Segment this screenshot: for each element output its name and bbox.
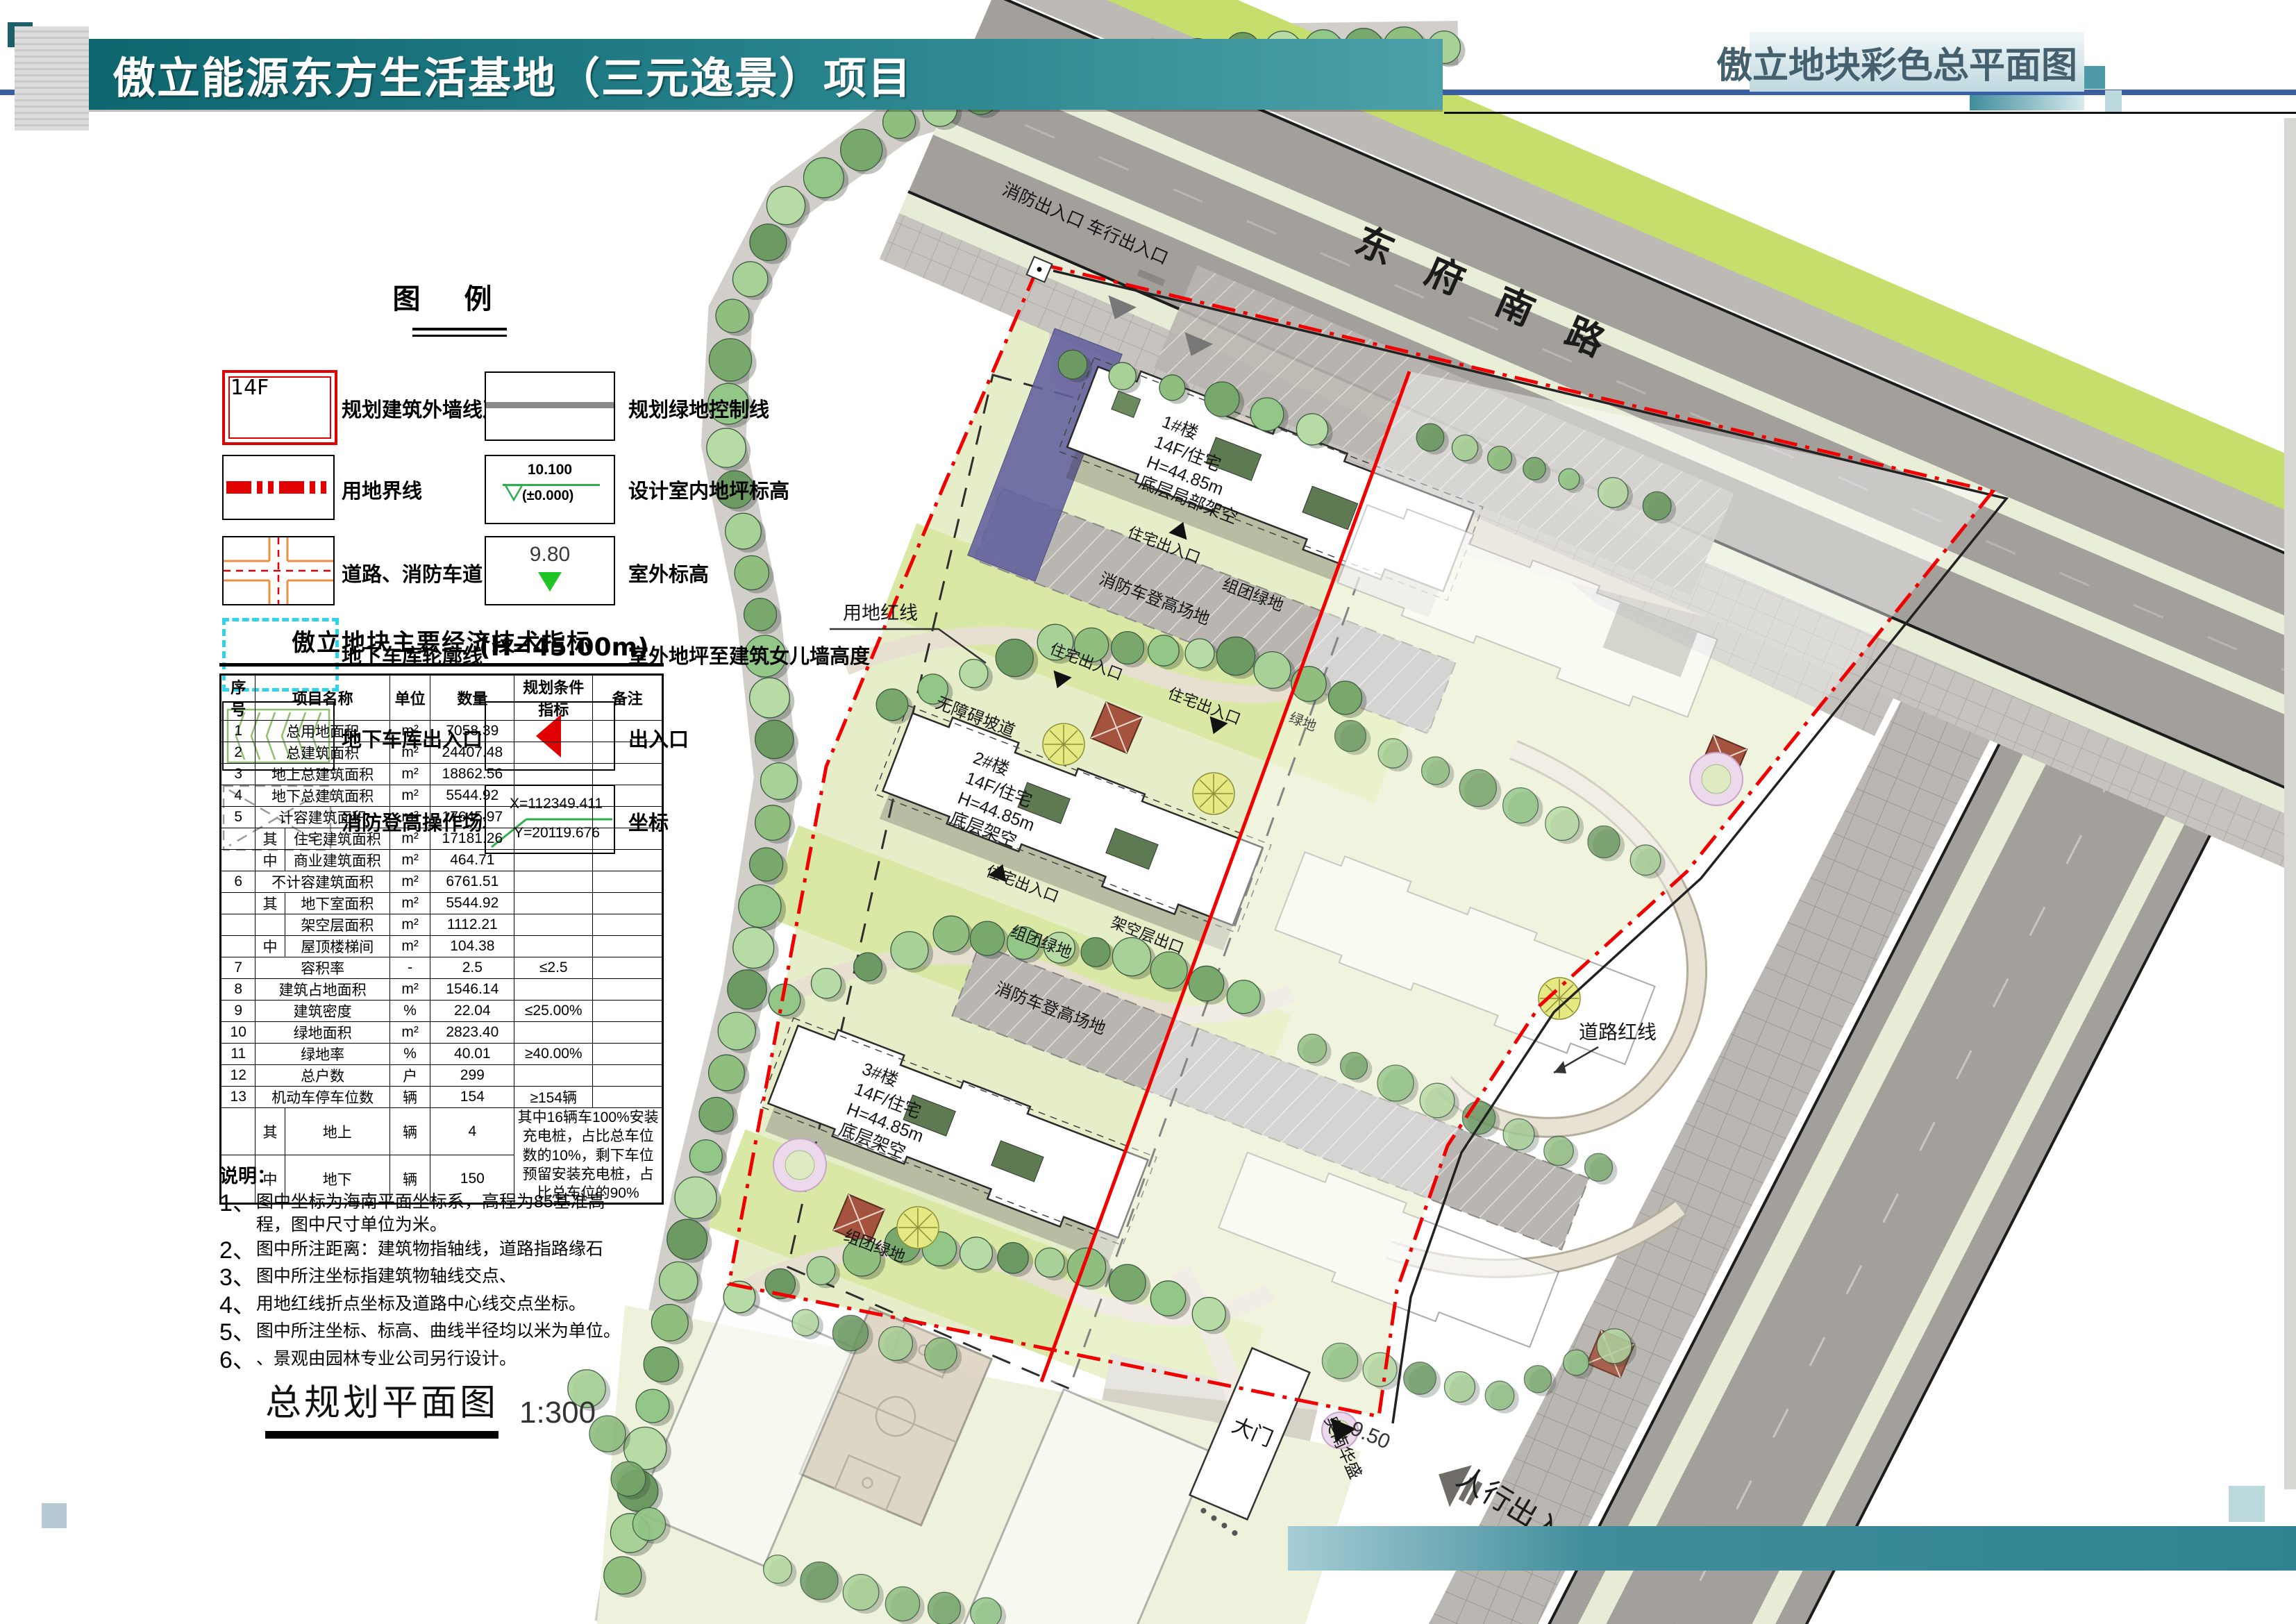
legend-label: 规划绿地控制线	[628, 394, 769, 423]
header-black-line	[1444, 112, 2296, 114]
plan-ratio: 1:300	[519, 1396, 596, 1439]
header-subtitle-bar: 傲立地块彩色总平面图	[1750, 32, 2084, 92]
note-item: 1、图中坐标为海南平面坐标系，高程为85基准高程，图中尺寸单位为米。	[219, 1191, 622, 1237]
table-row: 4地下总建筑面积m²5544.92	[221, 785, 663, 807]
legend-level-bottom: (±0.000)	[522, 488, 573, 504]
header-striped-block	[15, 26, 89, 131]
table-row: 其住宅建筑面积m²17181.26	[221, 828, 663, 850]
header-title-bar: 傲立能源东方生活基地（三元逸景）项目	[89, 39, 1443, 110]
note-item: 4、用地红线折点坐标及道路中心线交点坐标。	[219, 1293, 622, 1319]
plan-label: 用地红线	[843, 603, 918, 623]
table-row: 11绿地率%40.01≥40.00%	[221, 1044, 663, 1065]
notes-title: 说明：	[219, 1161, 622, 1188]
table-row: 中商业建筑面积m²464.71	[221, 850, 663, 871]
indicators-section: 傲立地块主要经济技术指标 序号 项目名称 单位 数量 规划条件指标 备注 1总用…	[219, 623, 664, 1205]
legend-title: 图 例	[389, 276, 514, 317]
indicators-table: 序号 项目名称 单位 数量 规划条件指标 备注 1总用地面积m²7058.392…	[219, 673, 664, 1205]
legend-label: 用地界线	[342, 475, 422, 504]
table-row: 其地上辆4其中16辆车100%安装充电桩，占比总车位数的10%，剩下车位预留安装…	[221, 1108, 663, 1155]
header-pale-square	[2105, 90, 2122, 113]
legend-outdoor-value: 9.80	[486, 543, 614, 567]
legend-label: 设计室内地坪标高	[628, 475, 789, 504]
note-item: 2、图中所注距离：建筑物指轴线，道路指路缘石	[219, 1238, 622, 1264]
legend-label: 室外地坪至建筑女儿墙高度	[628, 640, 870, 669]
plan-label: 道路红线	[1579, 1021, 1657, 1043]
legend-road-swatch	[222, 536, 335, 605]
page: 东府南路消防出入口 车行出入口人行出入口大门用地红线道路红线1#楼14F/住宅H…	[0, 0, 2296, 1624]
legend-building-outline-swatch: 14F	[222, 370, 337, 445]
legend-rule	[412, 335, 507, 337]
note-item: 5、图中所注坐标、标高、曲线半径均以米为单位。	[219, 1320, 622, 1346]
page-title: 傲立能源东方生活基地（三元逸景）项目	[89, 43, 912, 106]
table-row: 6不计容建筑面积m²6761.51	[221, 871, 663, 893]
legend-outdoor-level-swatch: 9.80	[485, 536, 615, 605]
table-row: 13机动车停车位数辆154≥154辆	[221, 1087, 663, 1108]
footer-teal-bar	[1288, 1526, 2296, 1571]
table-row: 8建筑占地面积m²1546.14	[221, 979, 663, 1001]
legend-floors-text: 14F	[231, 376, 269, 400]
plan-label: 9.50	[1347, 1417, 1393, 1454]
legend-label: 道路、消防车道	[342, 558, 483, 587]
table-row: 3地上总建筑面积m²18862.56	[221, 764, 663, 785]
legend-label: 室外标高	[628, 558, 709, 587]
table-row: 架空层面积m²1112.21	[221, 914, 663, 936]
legend-indoor-level-swatch: 10.100 (±0.000)	[485, 455, 615, 524]
legend-greenline-swatch	[485, 371, 615, 441]
table-row: 5计容建筑面积m²17645.97	[221, 807, 663, 828]
table-row: 9建筑密度%22.04≤25.00%	[221, 1001, 663, 1022]
indicators-title: 傲立地块主要经济技术指标	[219, 623, 664, 667]
page-subtitle: 傲立地块彩色总平面图	[1716, 36, 2084, 88]
table-row: 1总用地面积m²7058.39	[221, 721, 663, 742]
right-edge-strip	[2284, 118, 2296, 1489]
header-teal-gradient	[1970, 95, 2084, 110]
footer-right-square	[2229, 1486, 2265, 1522]
header-teal-square	[2084, 66, 2105, 89]
table-row: 2总建筑面积m²24407.48	[221, 742, 663, 764]
legend-level-top: 10.100	[486, 462, 614, 478]
scale-label: 总规划平面图 1:300	[265, 1373, 596, 1439]
legend-rule	[412, 328, 507, 330]
table-row: 12总户数户299	[221, 1065, 663, 1087]
plan-name: 总规划平面图	[265, 1373, 498, 1439]
note-item: 3、图中所注坐标指建筑物轴线交点、	[219, 1265, 622, 1291]
table-row: 其地下室面积m²5544.92	[221, 893, 663, 914]
footer-left-square	[42, 1503, 67, 1528]
table-row: 中屋顶楼梯间m²104.38	[221, 936, 663, 957]
table-row: 7容积率-2.5≤2.5	[221, 957, 663, 979]
legend-land-boundary-swatch	[222, 455, 335, 520]
note-item: 6、、景观由园林专业公司另行设计。	[219, 1348, 622, 1373]
table-row: 10绿地面积m²2823.40	[221, 1022, 663, 1044]
table-header-row: 序号 项目名称 单位 数量 规划条件指标 备注	[221, 675, 663, 721]
notes-section: 说明： 1、图中坐标为海南平面坐标系，高程为85基准高程，图中尺寸单位为米。2、…	[219, 1161, 622, 1375]
